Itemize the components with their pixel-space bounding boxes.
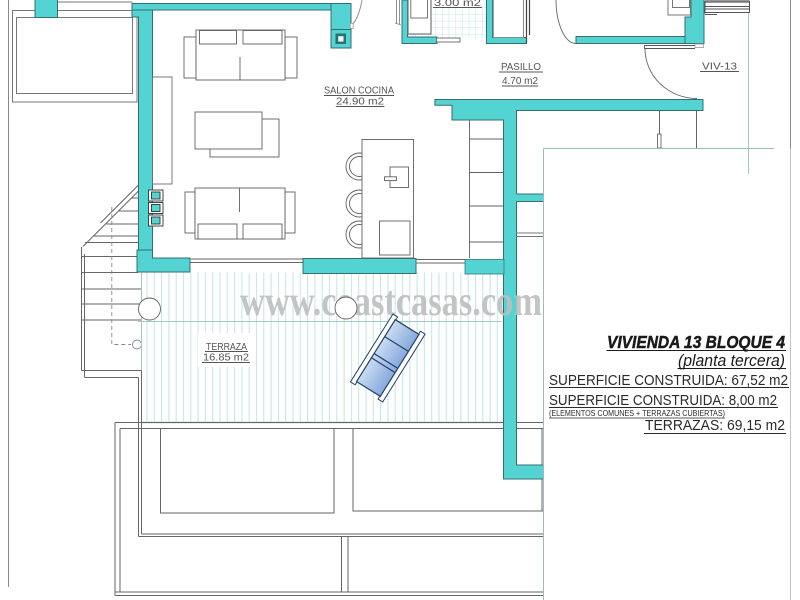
svg-text:VIVIENDA 13 BLOQUE 4: VIVIENDA 13 BLOQUE 4 bbox=[607, 332, 785, 352]
svg-text:16.85 m2: 16.85 m2 bbox=[203, 352, 249, 364]
svg-text:4.70 m2: 4.70 m2 bbox=[502, 75, 538, 87]
svg-text:PASILLO: PASILLO bbox=[501, 61, 541, 73]
svg-text:SUPERFICIE CONSTRUIDA: 67,52 m: SUPERFICIE CONSTRUIDA: 67,52 m2 bbox=[549, 373, 788, 389]
svg-text:(planta tercera): (planta tercera) bbox=[678, 352, 785, 370]
svg-text:24.90 m2: 24.90 m2 bbox=[336, 96, 384, 108]
svg-text:SUPERFICIE CONSTRUIDA: 8,00 m2: SUPERFICIE CONSTRUIDA: 8,00 m2 bbox=[549, 393, 777, 409]
svg-text:(ELEMENTOS COMUNES + TERRAZAS: (ELEMENTOS COMUNES + TERRAZAS CUBIERTAS) bbox=[549, 409, 725, 418]
svg-text:VIV-13: VIV-13 bbox=[702, 61, 737, 73]
svg-text:TERRAZAS: 69,15 m2: TERRAZAS: 69,15 m2 bbox=[645, 418, 785, 434]
